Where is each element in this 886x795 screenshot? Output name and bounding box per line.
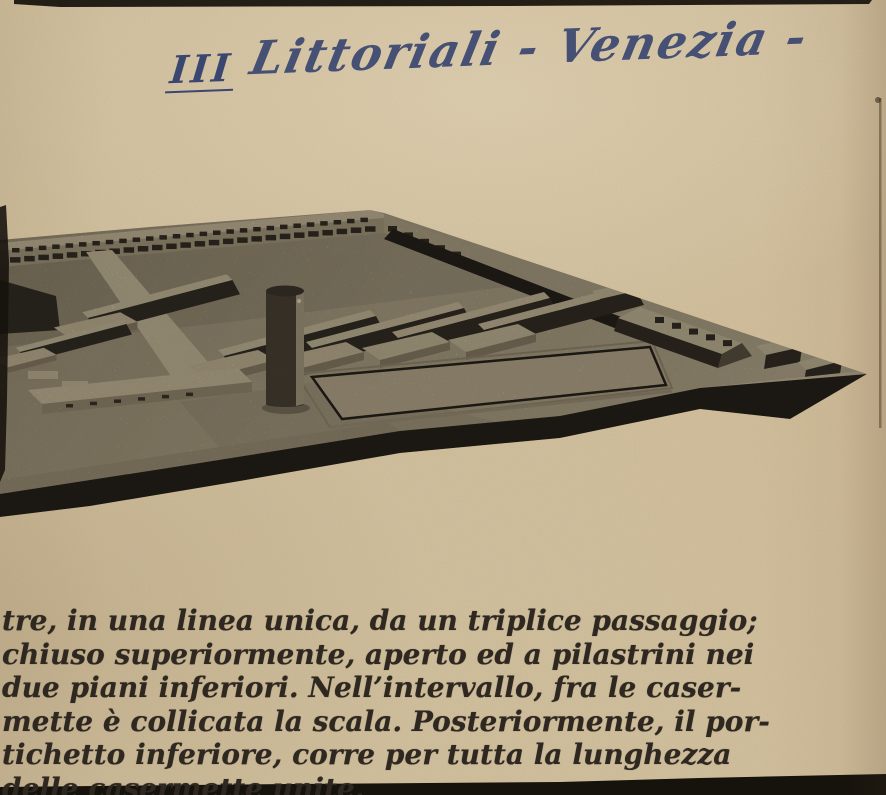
caption-line: tichetto inferiore, corre per tutta la l… (2, 738, 726, 772)
right-edge-shade (840, 0, 886, 795)
caption-block: tre, in una linea unica, da un triplice … (2, 604, 726, 795)
caption-line: tre, in una linea unica, da un triplice … (2, 604, 726, 638)
caption-line: mette è collicata la scala. Posteriormen… (2, 705, 726, 739)
caption-line: due piani inferiori. Nell’intervallo, fr… (2, 671, 726, 705)
scanned-clipping-page: IIILittoriali - Venezia - (0, 0, 886, 795)
caption-line: delle casermette unite. (2, 772, 726, 795)
caption-line: chiuso superiormente, aperto ed a pilast… (2, 638, 726, 672)
